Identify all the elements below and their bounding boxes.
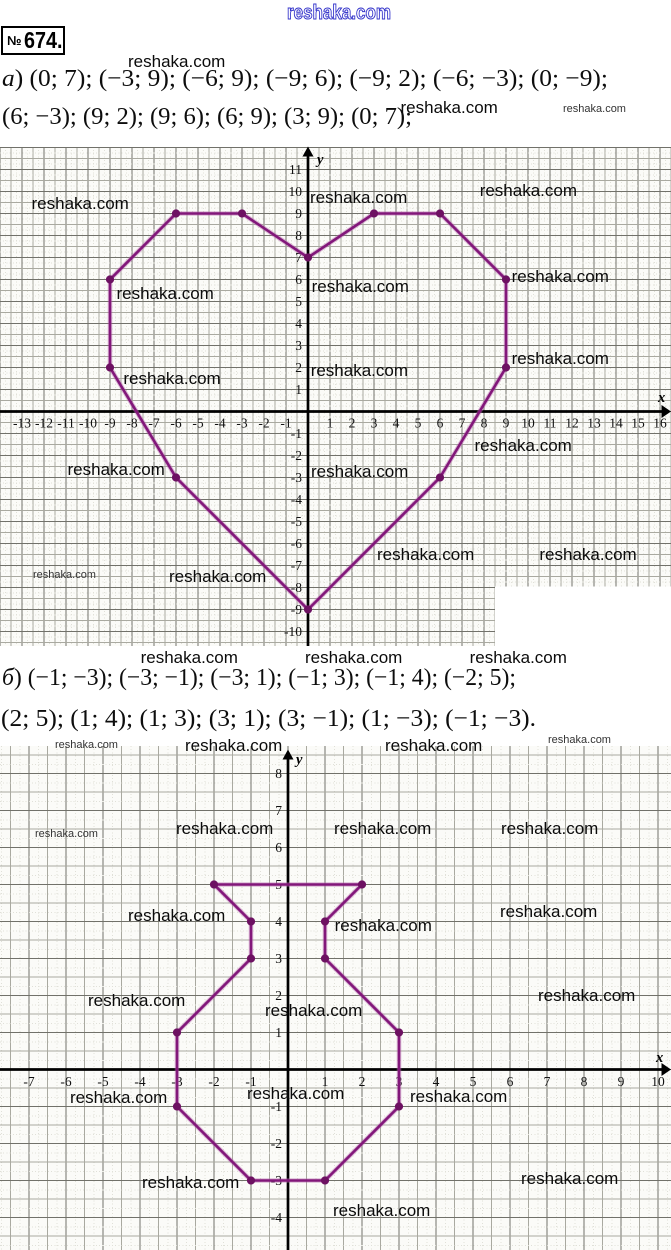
svg-text:x: x: [655, 1050, 663, 1066]
svg-text:-5: -5: [97, 1074, 108, 1089]
svg-text:13: 13: [587, 416, 601, 431]
svg-text:-4: -4: [271, 1210, 282, 1225]
svg-text:5: 5: [415, 416, 422, 431]
svg-text:6: 6: [295, 272, 302, 287]
svg-text:7: 7: [544, 1074, 551, 1089]
svg-text:-1: -1: [291, 426, 302, 441]
svg-text:16: 16: [653, 416, 667, 431]
svg-text:15: 15: [631, 416, 645, 431]
svg-text:7: 7: [459, 416, 466, 431]
svg-text:-12: -12: [35, 416, 53, 431]
svg-text:-10: -10: [284, 624, 302, 639]
svg-text:8: 8: [481, 416, 488, 431]
svg-text:-6: -6: [170, 416, 181, 431]
svg-text:2: 2: [295, 360, 302, 375]
svg-text:-3: -3: [291, 470, 302, 485]
svg-text:6: 6: [437, 416, 444, 431]
svg-text:3: 3: [295, 338, 302, 353]
svg-text:-6: -6: [291, 536, 302, 551]
svg-text:2: 2: [359, 1074, 366, 1089]
svg-text:-4: -4: [134, 1074, 145, 1089]
svg-text:8: 8: [275, 766, 282, 781]
svg-text:9: 9: [503, 416, 510, 431]
svg-text:4: 4: [295, 316, 302, 331]
svg-text:-3: -3: [236, 416, 247, 431]
svg-text:-7: -7: [23, 1074, 34, 1089]
svg-text:8: 8: [581, 1074, 588, 1089]
svg-text:6: 6: [507, 1074, 514, 1089]
svg-text:10: 10: [521, 416, 535, 431]
svg-text:-2: -2: [291, 448, 302, 463]
svg-text:-5: -5: [291, 514, 302, 529]
svg-text:9: 9: [295, 206, 302, 221]
svg-text:1: 1: [275, 1025, 282, 1040]
svg-text:-7: -7: [148, 416, 159, 431]
svg-text:11: 11: [544, 416, 557, 431]
svg-text:-2: -2: [258, 416, 269, 431]
svg-text:-9: -9: [104, 416, 115, 431]
svg-text:12: 12: [565, 416, 579, 431]
svg-text:3: 3: [371, 416, 378, 431]
svg-text:-11: -11: [57, 416, 75, 431]
svg-text:10: 10: [651, 1074, 665, 1089]
svg-text:1: 1: [327, 416, 334, 431]
svg-text:5: 5: [295, 294, 302, 309]
svg-text:11: 11: [289, 162, 302, 177]
svg-text:9: 9: [618, 1074, 625, 1089]
svg-text:1: 1: [295, 382, 302, 397]
svg-text:-8: -8: [126, 416, 137, 431]
svg-text:-2: -2: [208, 1074, 219, 1089]
svg-text:6: 6: [275, 840, 282, 855]
svg-text:8: 8: [295, 228, 302, 243]
svg-text:-6: -6: [60, 1074, 71, 1089]
svg-text:y: y: [294, 752, 303, 768]
svg-text:y: y: [315, 152, 324, 168]
svg-text:-2: -2: [271, 1136, 282, 1151]
svg-text:14: 14: [609, 416, 623, 431]
svg-text:-13: -13: [13, 416, 31, 431]
svg-text:3: 3: [275, 951, 282, 966]
svg-text:-5: -5: [192, 416, 203, 431]
svg-text:-7: -7: [291, 558, 302, 573]
svg-text:-10: -10: [79, 416, 97, 431]
svg-text:-4: -4: [214, 416, 225, 431]
svg-text:x: x: [657, 390, 665, 406]
svg-text:-4: -4: [291, 492, 302, 507]
svg-text:10: 10: [289, 184, 303, 199]
svg-text:4: 4: [275, 914, 282, 929]
svg-text:4: 4: [393, 416, 400, 431]
svg-text:2: 2: [349, 416, 356, 431]
svg-text:7: 7: [275, 803, 282, 818]
